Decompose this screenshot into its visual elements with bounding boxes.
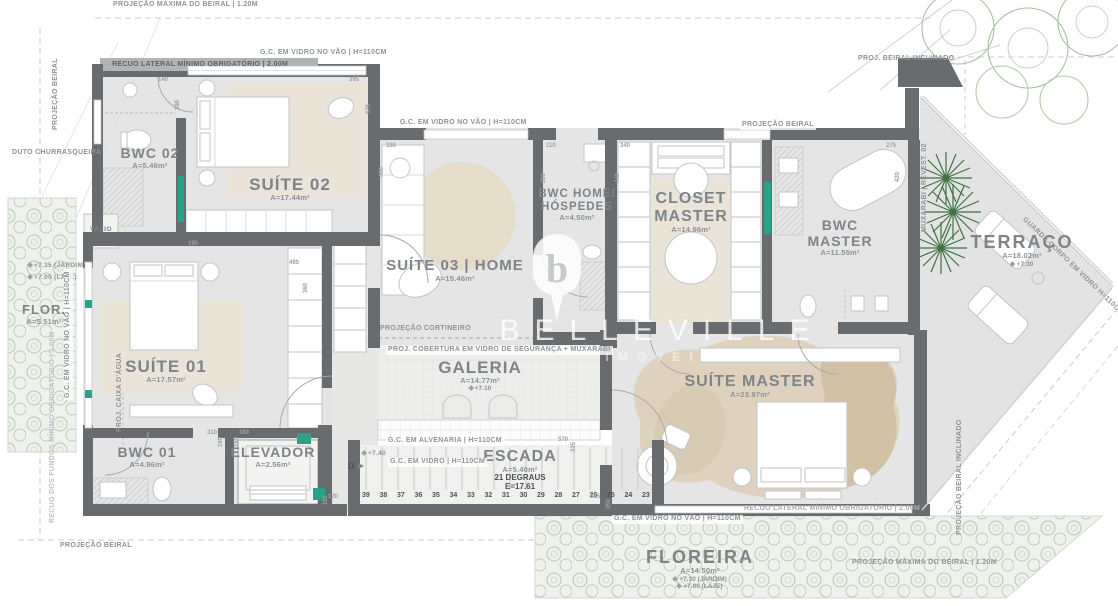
stair-number: 23 <box>642 492 650 499</box>
dimension-label: 685 <box>590 494 600 500</box>
dimension-label: 400 <box>379 167 385 177</box>
stair-number: 27 <box>572 492 580 499</box>
labels-layer: BWC 02 A=5.46m² SUÍTE 02 A=17.44m² SUÍTE… <box>0 0 1118 606</box>
stair-number: 37 <box>397 492 405 499</box>
room-label-suite01: SUÍTE 01 A=17.57m² <box>125 357 207 384</box>
dimension-label: 395 <box>349 77 359 83</box>
dimension-label: 420 <box>895 172 901 182</box>
dimension-label: 275 <box>886 143 896 149</box>
dimension-label: 440 <box>615 173 621 183</box>
annotation-label: MUXARABI | REVEST. 02 <box>921 143 930 232</box>
dimension-label: 335 <box>571 442 577 452</box>
stair-number: 38 <box>380 492 388 499</box>
room-label-suite03: SUÍTE 03 | HOME A=15.46m² <box>386 258 524 283</box>
room-label-floreira: FLOREIRA A=14.50m² +7.30 (JARDIM) +7.00 … <box>646 547 754 590</box>
dimension-label: 160 <box>239 430 249 436</box>
annotation-label: PROJEÇÃO MÁXIMA DO BEIRAL | 1.20M <box>113 1 258 10</box>
annotation-label: RECUO DOS FUNDOS MÍNIMO OBRIGATÓRIO | 3.… <box>49 329 58 525</box>
room-label-closet-master: CLOSET MASTER A=14.96m² <box>654 190 728 234</box>
room-label-bwc01: BWC 01 A=4.96m² <box>118 445 177 469</box>
annotation-label: PROJEÇÃO BEIRAL INCLINADO <box>956 420 965 536</box>
dimension-label: 110 <box>546 143 556 149</box>
stair-number: 34 <box>450 492 458 499</box>
dimension-label: 340 <box>620 143 630 149</box>
level-mark: +7.40 <box>362 450 386 458</box>
room-label-suite-master: SUÍTE MASTER A=23.97m² <box>684 373 815 399</box>
room-label-bwc-master: BWC MASTER A=11.55m² <box>807 218 872 258</box>
dimension-label: 575 <box>366 104 372 114</box>
detail-marker-d: D <box>348 461 364 471</box>
dimension-label: 350 <box>606 499 612 509</box>
stair-number: 36 <box>415 492 423 499</box>
room-label-bwc-home: BWC HOME/ HÓSPEDES A=4.50m² <box>538 188 615 222</box>
room-label-escada: ESCADA A=5.40m² 21 DEGRAUS E=17.61 <box>483 448 557 492</box>
dimension-label: 310 <box>207 430 217 436</box>
room-label-elevador: ELEVADOR A=2.56m² <box>231 445 316 469</box>
dimension-label: 495 <box>289 260 299 266</box>
dimension-label: 120 <box>328 494 338 500</box>
annotation-label: PROJEÇÃO CORTINEIRO <box>380 325 471 334</box>
annotation-label: G.C. EM VIDRO NO VÃO | H=110CM <box>258 49 389 58</box>
annotation-label: PROJEÇÃO BEIRAL <box>52 58 61 130</box>
stair-number: 25 <box>607 492 615 499</box>
dimension-label: 330 <box>386 143 396 149</box>
annotation-label: G.C. EM VIDRO | H=110CM <box>388 458 487 467</box>
dimension-label: 390 <box>175 100 181 110</box>
annotation-label: G.C. EM VIDRO NO VÃO | H=110CM <box>612 515 743 524</box>
room-label-bwc02: BWC 02 A=5.46m² <box>121 146 180 170</box>
stair-number: 32 <box>485 492 493 499</box>
annotation-label: PROJEÇÃO BEIRAL <box>60 542 132 551</box>
dimension-label: 140 <box>158 77 168 83</box>
annotation-label: PROJ. CAIXA D'ÁGUA <box>116 353 125 432</box>
room-label-suite02: SUÍTE 02 A=17.44m² <box>249 175 331 202</box>
dimension-label: 390 <box>541 173 547 183</box>
annotation-label: DUTO CHURRASQUEIRA <box>12 149 101 158</box>
room-label-vazio: VAZIO <box>90 226 112 233</box>
dimension-label: 160 <box>234 437 240 447</box>
stair-number: 39 <box>362 492 370 499</box>
stair-number: 35 <box>432 492 440 499</box>
dimension-label: 360 <box>303 283 309 293</box>
annotation-label: PROJEÇÃO BEIRAL <box>740 121 816 130</box>
dimension-label: 160 <box>218 437 224 447</box>
room-label-floreira-left: FLOR. A=5.51m² <box>22 303 66 326</box>
annotation-label: GUARDA-CORPO EM VIDRO H=110CM <box>1020 216 1118 318</box>
stair-number: 31 <box>502 492 510 499</box>
stair-number: 28 <box>555 492 563 499</box>
annotation-label: G.C. EM VIDRO NO VÃO | H=110CM <box>398 119 529 128</box>
annotation-label: G.C. EM ALVENARIA | H=110CM <box>386 437 504 446</box>
annotation-label: G.C. EM VIDRO NO VÃO | H=110CM <box>64 269 73 400</box>
annotation-label: PROJ. BEIRAL INCLINADO <box>858 55 954 64</box>
stair-number: 29 <box>537 492 545 499</box>
room-label-galeria: GALERIA A=14.77m² +7.10 <box>438 358 522 393</box>
stair-number: 30 <box>520 492 528 499</box>
annotation-label: RECUO LATERAL MÍNIMO OBRIGATÓRIO | 2.00M <box>742 505 922 514</box>
annotation-label: PROJEÇÃO MÁXIMA DO BEIRAL | 1.20M <box>852 559 997 568</box>
floorplan-canvas: b BELLEVILLE IMÓVEIS BWC 02 A=5.46m² SUÍ… <box>0 0 1118 606</box>
stair-number: 33 <box>467 492 475 499</box>
dimension-label: 295 <box>188 241 198 247</box>
stair-step-numbers: 3938373635343332313029282726252423 <box>362 492 650 499</box>
annotation-label: PROJ. COBERTURA EM VIDRO DE SEGURANÇA + … <box>386 346 613 355</box>
dimension-label: 570 <box>558 437 568 443</box>
annotation-label: +7.35 (JARDIM) <box>28 262 86 270</box>
stair-number: 24 <box>625 492 633 499</box>
annotation-label: RECUO LATERAL MÍNIMO OBRIGATÓRIO | 2.00M <box>110 61 290 70</box>
